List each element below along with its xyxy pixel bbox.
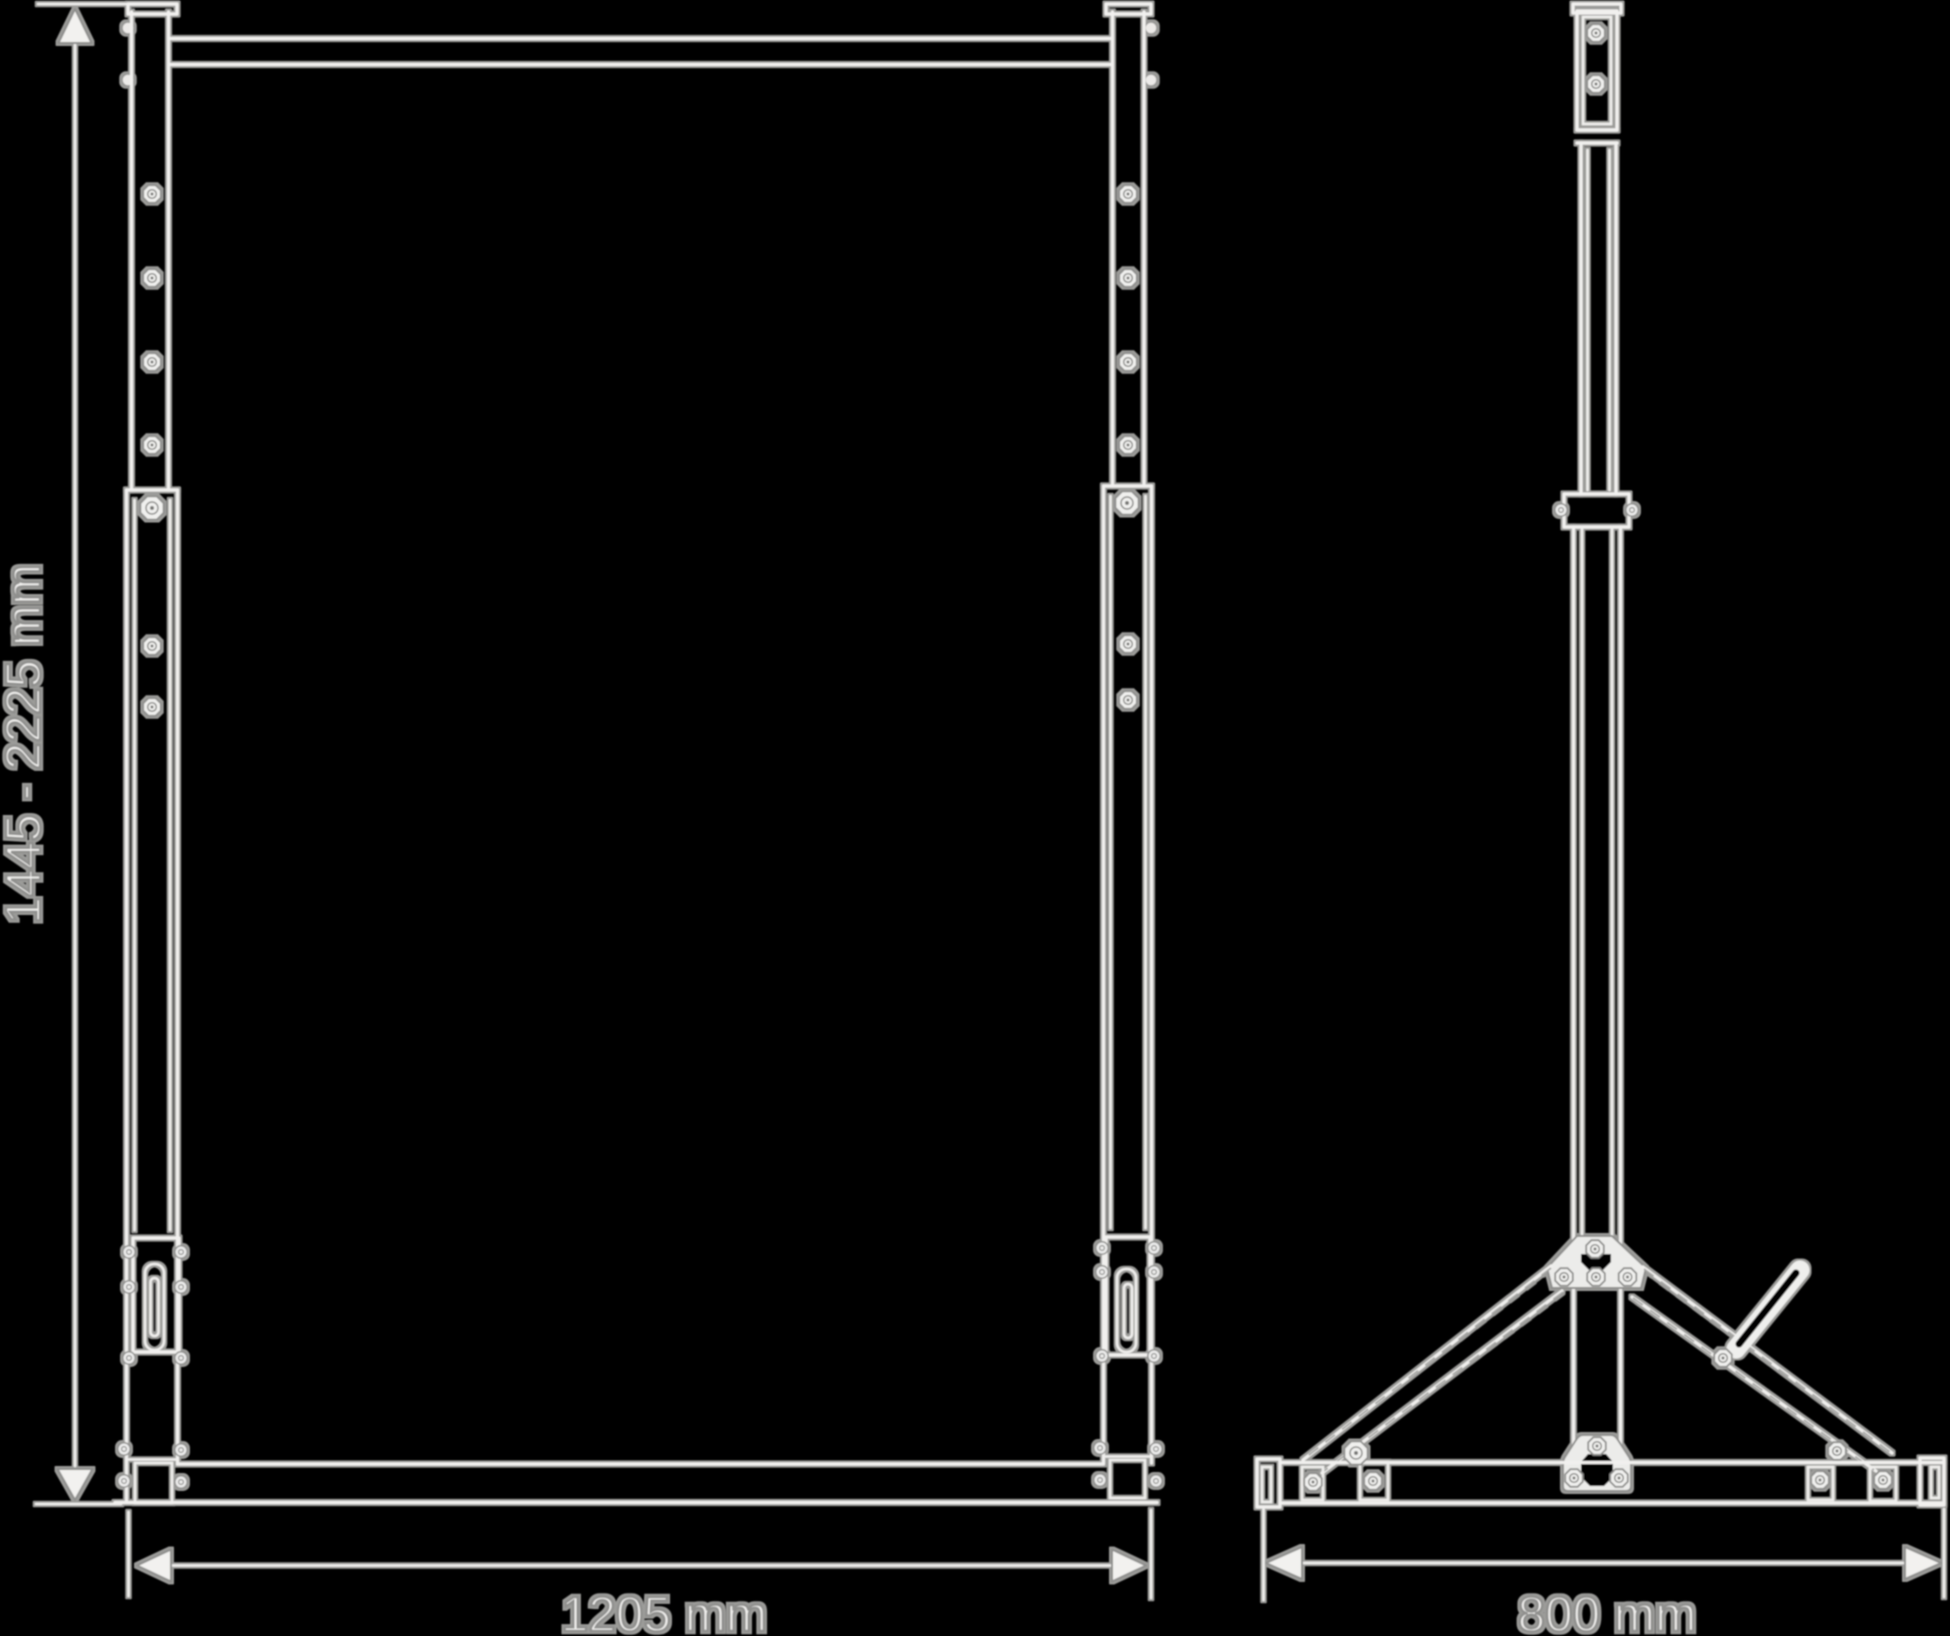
svg-text:800 mm: 800 mm	[1518, 1587, 1697, 1636]
svg-text:1445 - 2225 mm: 1445 - 2225 mm	[0, 564, 51, 924]
svg-text:1205 mm: 1205 mm	[561, 1587, 767, 1636]
